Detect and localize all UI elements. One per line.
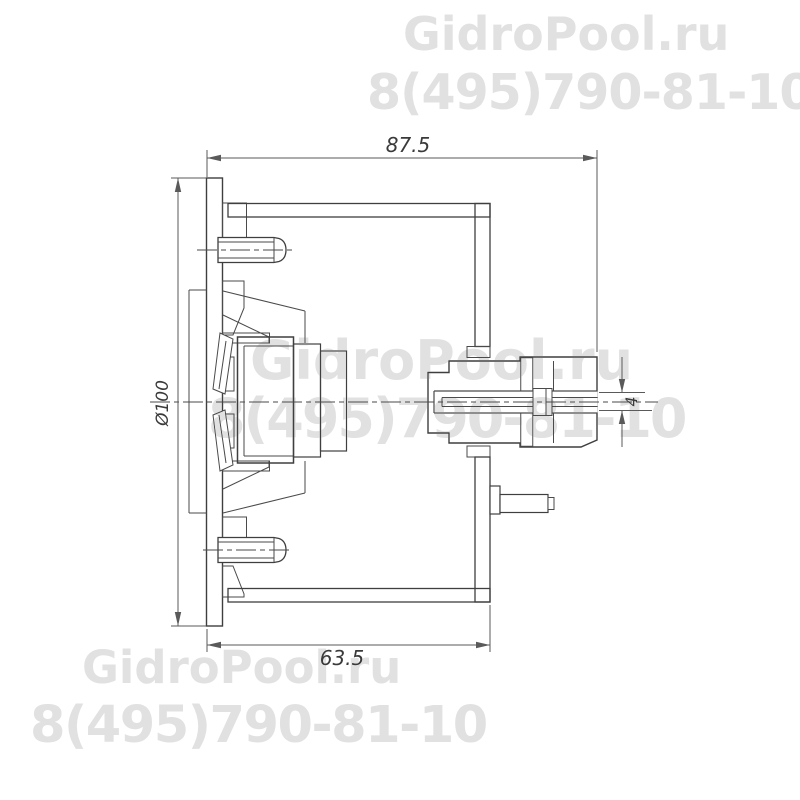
upper-bolt [197,238,292,263]
stem [500,495,548,513]
watermark-brand-bottom: GidroPool.ru [82,645,401,690]
stem-boss [490,486,500,514]
screenshot-canvas: 87.5 Ø100 63.5 4 GidroPool.ru 8(495)790-… [0,0,800,800]
watermark-phone-bottom: 8(495)790-81-10 [30,700,487,751]
watermark-phone-top: 8(495)790-81-10 [367,68,800,117]
lower-bolt [203,538,289,563]
dim-label-87-5: 87.5 [386,133,431,157]
watermark-phone-middle: 8(495)790-81-10 [208,392,686,446]
watermark-brand-top: GidroPool.ru [403,11,729,57]
watermark-brand-middle: GidroPool.ru [250,334,633,388]
dim-label-d100: Ø100 [153,380,173,427]
